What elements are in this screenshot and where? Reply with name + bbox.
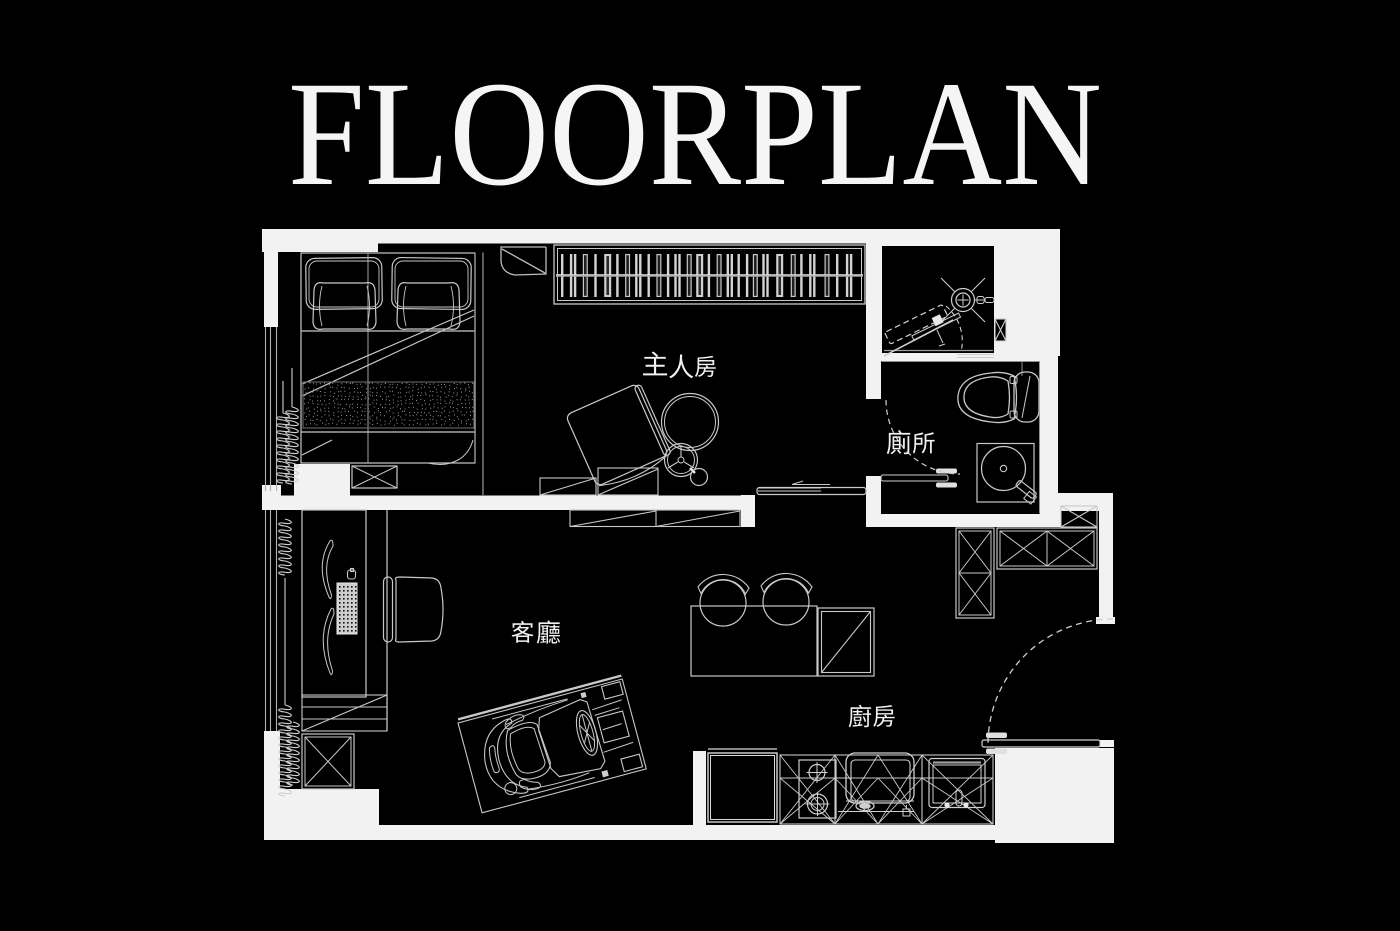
svg-text:FLOORPLAN: FLOORPLAN <box>288 51 1102 217</box>
